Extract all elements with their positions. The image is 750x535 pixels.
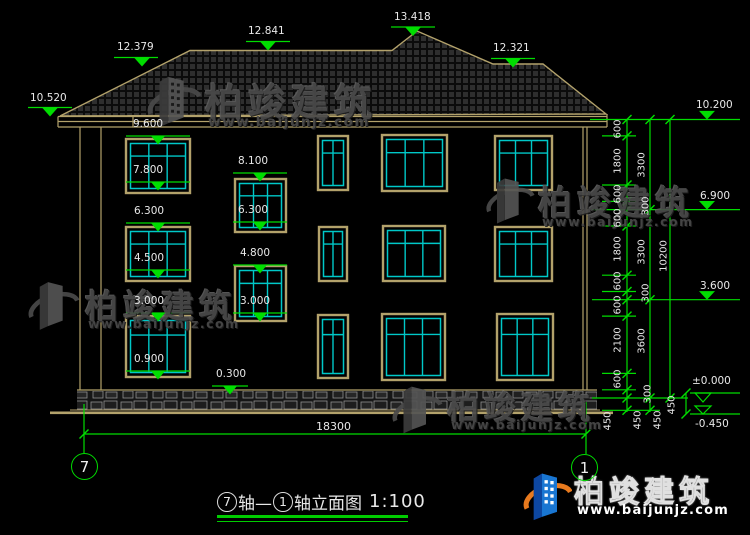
chain-label: 2100 <box>613 327 624 352</box>
chain-label: 3600 <box>637 328 648 353</box>
drawing-title: 7轴—1轴立面图1:100 <box>216 489 426 514</box>
win-label: 6.300 <box>134 206 164 217</box>
axis-number: 7 <box>80 458 90 476</box>
elev-label: 12.379 <box>117 42 154 53</box>
title-underline <box>217 521 408 522</box>
elev-label: 6.900 <box>700 191 730 202</box>
chain-label: 300 <box>643 384 654 403</box>
watermark: 柏竣建筑 www.baijunjz.com <box>145 70 425 136</box>
total-width-dimension: 18300 <box>316 420 351 433</box>
axis-number: 1 <box>580 459 590 477</box>
chain-label: 600 <box>613 208 624 227</box>
chain-label: 600 <box>613 119 624 138</box>
elev-label: -0.450 <box>695 419 729 430</box>
title-tail: 轴立面图 <box>294 489 362 514</box>
win-label: 0.900 <box>134 354 164 365</box>
logo-building-icon <box>522 464 572 528</box>
win-label: 6.300 <box>238 205 268 216</box>
elev-label: 10.200 <box>696 100 733 111</box>
watermark-url: www.baijunjz.com <box>451 417 603 432</box>
elev-label: 3.600 <box>700 281 730 292</box>
watermark-building-icon <box>390 380 444 440</box>
title-scale: 1:100 <box>369 491 426 512</box>
chain-label: 10200 <box>659 240 670 272</box>
chain-label: 300 <box>641 283 652 302</box>
title-mid: 轴— <box>238 489 272 514</box>
win-label: 8.100 <box>238 156 268 167</box>
win-label: 4.800 <box>240 248 270 259</box>
chain-label: 450 <box>653 410 664 429</box>
title-axis-from: 7 <box>217 492 237 512</box>
elev-label: 12.321 <box>493 43 530 54</box>
watermark-building-icon <box>26 276 81 336</box>
chain-label: 600 <box>613 295 624 314</box>
title-axis-to: 1 <box>273 492 293 512</box>
chain-label: 450 <box>633 410 644 429</box>
chain-label: 300 <box>641 196 652 215</box>
watermark-url: www.baijunjz.com <box>208 114 370 130</box>
chain-label: 600 <box>613 271 624 290</box>
axis-bubble-1: 1 <box>571 454 598 481</box>
win-label: 0.300 <box>216 369 246 380</box>
axis-bubble-7: 7 <box>71 453 98 480</box>
chain-label: 3300 <box>637 152 648 177</box>
chain-label: 600 <box>613 184 624 203</box>
elev-label: ±0.000 <box>692 376 731 387</box>
company-logo: 柏竣建筑 www.baijunjz.com <box>520 462 748 532</box>
chain-label: 1800 <box>613 148 624 173</box>
chain-label: 450 <box>667 395 678 414</box>
watermark-building-icon <box>484 172 536 230</box>
chain-label: 600 <box>613 369 624 388</box>
chain-label: 450 <box>603 411 614 430</box>
watermark-url: www.baijunjz.com <box>88 316 240 331</box>
cad-elevation-drawing: 柏竣建筑 www.baijunjz.com 柏竣建筑 www.baijunjz.… <box>0 0 750 535</box>
win-label: 4.500 <box>134 253 164 264</box>
elev-label: 10.520 <box>30 93 67 104</box>
win-label: 9.600 <box>133 119 163 130</box>
elev-label: 12.841 <box>248 26 285 37</box>
win-label: 3.000 <box>134 296 164 307</box>
chain-label: 1800 <box>613 236 624 261</box>
elev-label: 13.418 <box>394 12 431 23</box>
chain-label: 3300 <box>637 239 648 264</box>
title-underline <box>217 515 408 518</box>
win-label: 7.800 <box>133 165 163 176</box>
win-label: 3.000 <box>240 296 270 307</box>
logo-url: www.baijunjz.com <box>577 503 729 518</box>
